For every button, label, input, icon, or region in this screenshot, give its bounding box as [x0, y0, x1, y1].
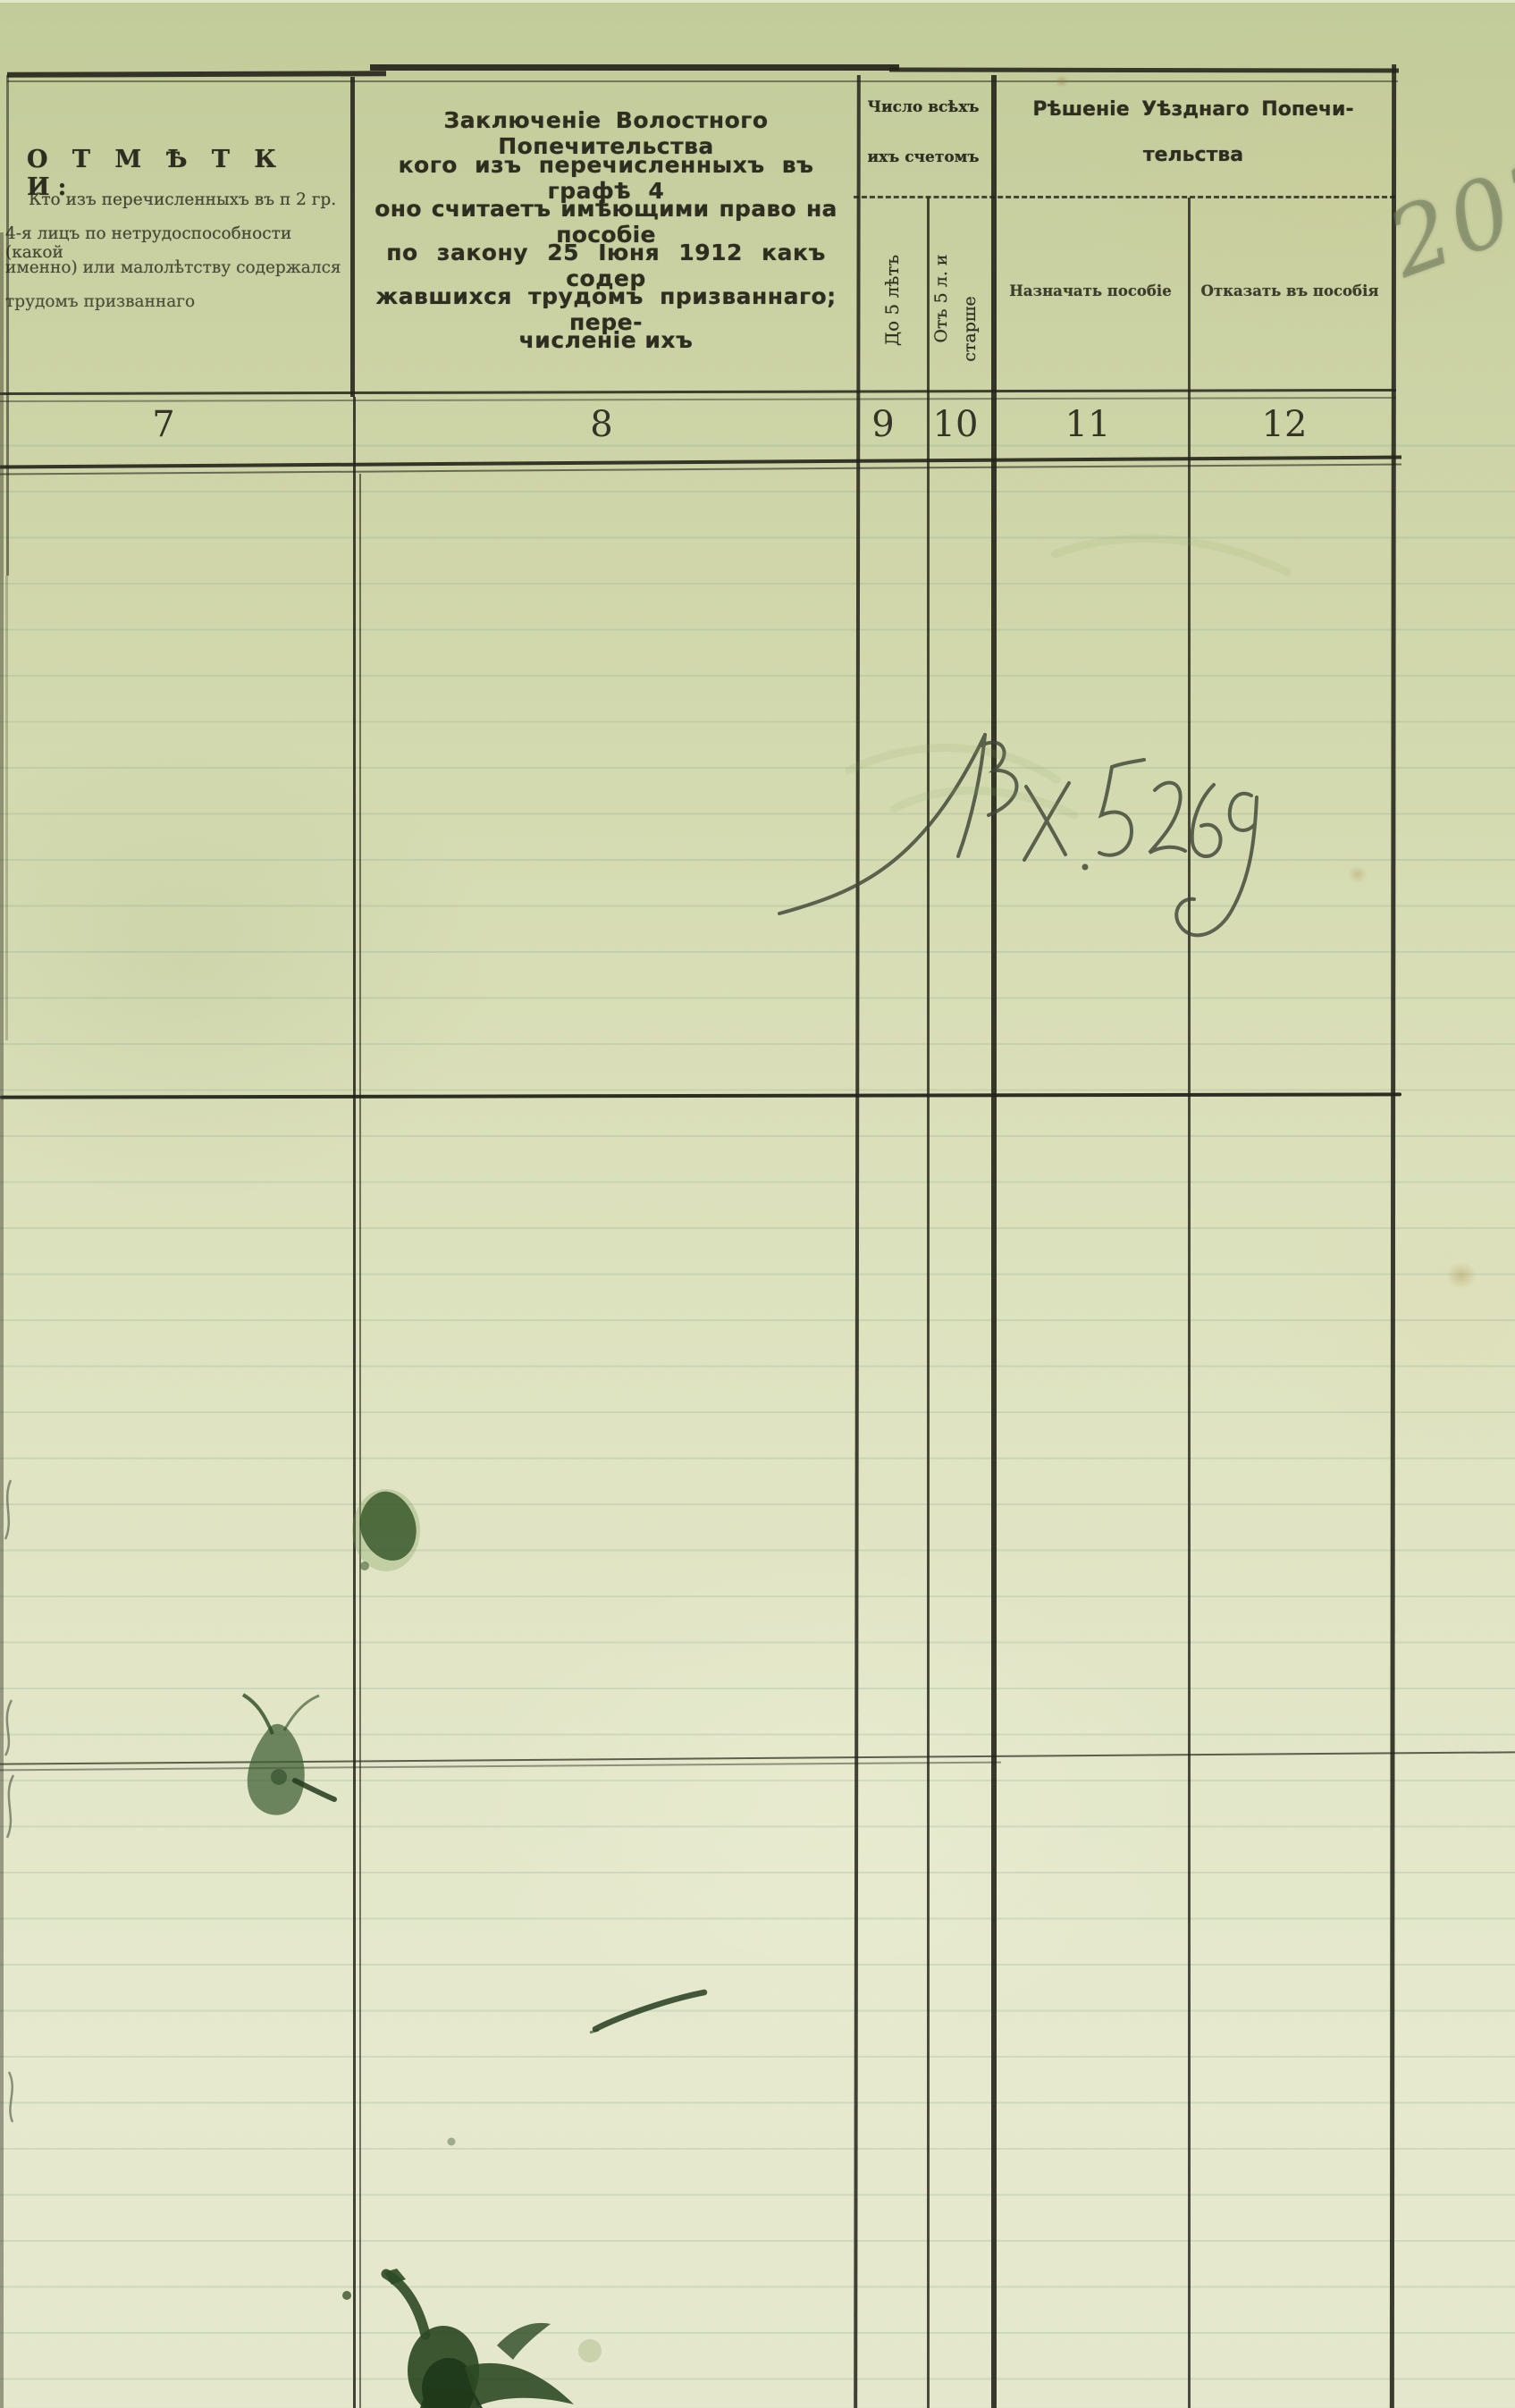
col9-subheader-label: До 5 лѣтъ	[878, 202, 906, 399]
scan-left-edge	[0, 232, 4, 2408]
column-number-10: 10	[926, 404, 985, 445]
green-ink-stroke-c	[590, 1992, 704, 2033]
group11-12-header-line2: тельства	[997, 144, 1390, 166]
col7-8-divider-double	[359, 474, 361, 2408]
table-left-border-faint	[5, 576, 8, 1040]
group11-12-header-line1: Рѣшеніе Уѣзднаго Попечи-	[997, 98, 1390, 121]
column-number-12: 12	[1253, 404, 1316, 445]
age-spot	[1446, 1262, 1477, 1289]
column-number-8: 8	[570, 404, 633, 445]
col7-header-line: 4-я лицъ по нетрудоспособности (какой	[5, 224, 352, 262]
table-left-border	[6, 75, 9, 576]
table-top-border-thin	[7, 80, 1398, 82]
column-number-11: 11	[1056, 404, 1119, 445]
ruled-feint-lines	[0, 400, 1515, 2408]
green-ink-stain-a	[352, 1489, 420, 1571]
pen-flourish	[779, 735, 1257, 935]
col10-subheader-label-line2: старше	[955, 235, 984, 423]
col11-12-divider	[1188, 198, 1191, 2408]
col11-subheader-label: Назначать пособіе	[994, 282, 1187, 299]
age-spot	[1348, 865, 1368, 883]
col12-subheader-label: Отказать въ пособія	[1191, 282, 1389, 299]
number-row-topline-thin	[0, 397, 1396, 402]
table-right-border	[1390, 64, 1396, 2408]
green-ink-stain-d	[342, 2269, 602, 2408]
scan-top-edge	[0, 0, 1515, 3]
col7-header-line: трудомъ призваннаго	[5, 292, 352, 311]
scanned-document-page: О Т М Ѣ Т К И: Кто изъ перечисленныхъ въ…	[0, 0, 1515, 2408]
table-top-border	[889, 68, 1399, 73]
col7-8-divider	[353, 397, 356, 2408]
column-number-7: 7	[132, 404, 195, 445]
table-top-border	[7, 71, 386, 77]
small-ink-dot	[448, 2138, 456, 2146]
left-edge-pencil-marks	[5, 1480, 13, 2122]
green-ink-stain-b	[243, 1695, 334, 1815]
col9-10-divider	[927, 198, 930, 2408]
col7-header-line: именно) или малолѣтству содержался	[5, 258, 352, 277]
number-row-topline	[0, 389, 1396, 395]
col10-subheader-label-line1: Отъ 5 л. и	[927, 205, 955, 392]
handwritten-registration-mark: Вх. 5269	[769, 679, 1269, 983]
column-number-9: 9	[858, 404, 908, 445]
registration-mark-text: Вх. 5269	[769, 679, 770, 680]
row-divider-1	[0, 1092, 1401, 1099]
col7-header-line: Кто изъ перечисленныхъ въ п 2 гр.	[5, 190, 345, 209]
col10-11-divider	[991, 75, 997, 2408]
paper-texture	[0, 0, 1515, 2408]
group-header-underline	[854, 196, 1395, 198]
col8-header-line: численіе ихъ	[361, 327, 851, 353]
ink-stains-layer	[0, 0, 1515, 2408]
table-top-border	[370, 64, 899, 71]
group9-10-header-line2: ихъ счетомъ	[858, 148, 989, 166]
group9-10-header-line1: Число всѣхъ	[858, 98, 989, 116]
